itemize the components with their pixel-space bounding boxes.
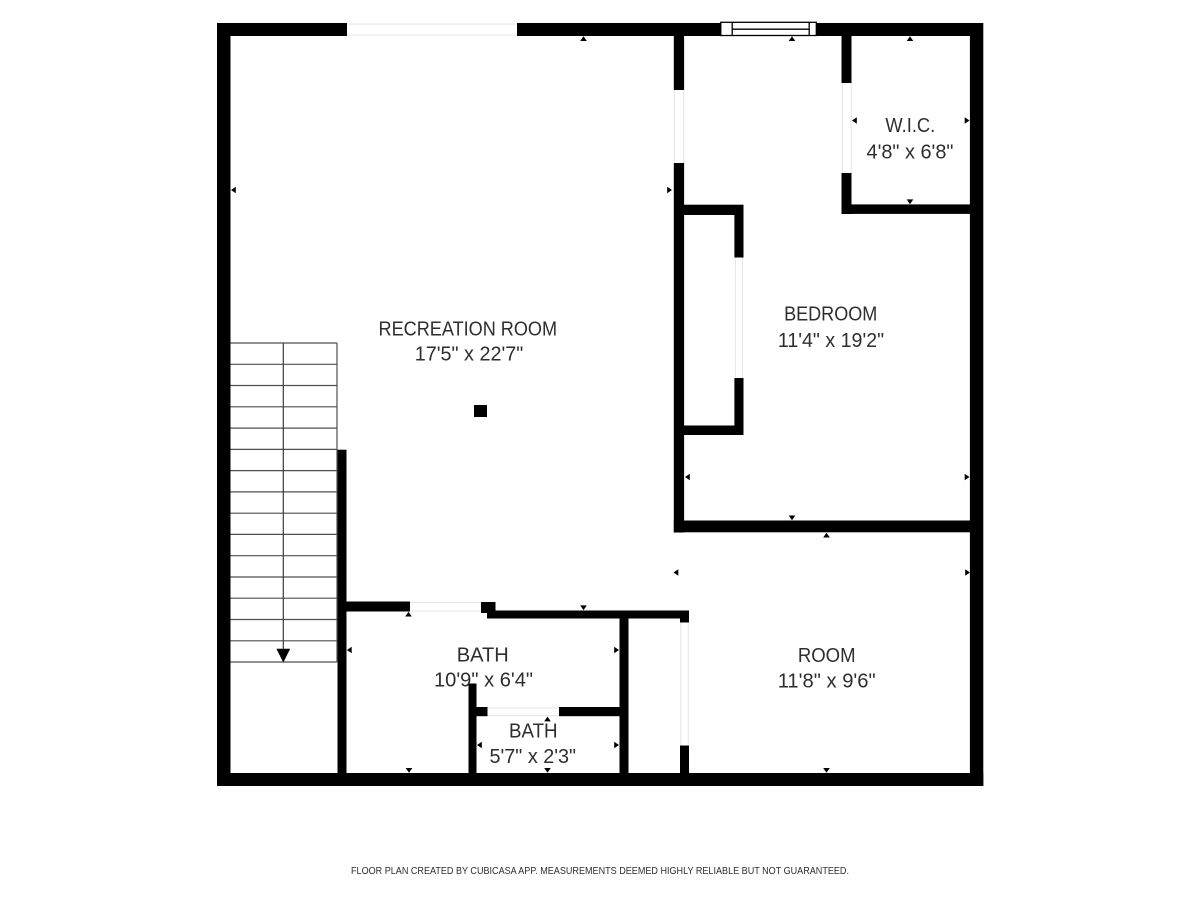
- svg-text:10'9" x 6'4": 10'9" x 6'4": [434, 669, 533, 692]
- svg-text:11'8" x 9'6": 11'8" x 9'6": [778, 670, 876, 693]
- svg-text:W.I.C.: W.I.C.: [885, 114, 935, 137]
- svg-text:BATH: BATH: [509, 720, 558, 743]
- svg-text:11'4" x 19'2": 11'4" x 19'2": [778, 329, 884, 352]
- svg-text:RECREATION ROOM: RECREATION ROOM: [379, 318, 558, 341]
- svg-text:BATH: BATH: [457, 644, 509, 667]
- svg-text:5'7" x 2'3": 5'7" x 2'3": [490, 745, 577, 768]
- svg-text:FLOOR PLAN CREATED BY CUBICASA: FLOOR PLAN CREATED BY CUBICASA APP. MEAS…: [351, 866, 849, 877]
- svg-text:BEDROOM: BEDROOM: [784, 303, 877, 326]
- svg-text:ROOM: ROOM: [798, 644, 856, 667]
- svg-text:4'8" x 6'8": 4'8" x 6'8": [867, 141, 954, 164]
- svg-text:17'5" x 22'7": 17'5" x 22'7": [415, 343, 524, 366]
